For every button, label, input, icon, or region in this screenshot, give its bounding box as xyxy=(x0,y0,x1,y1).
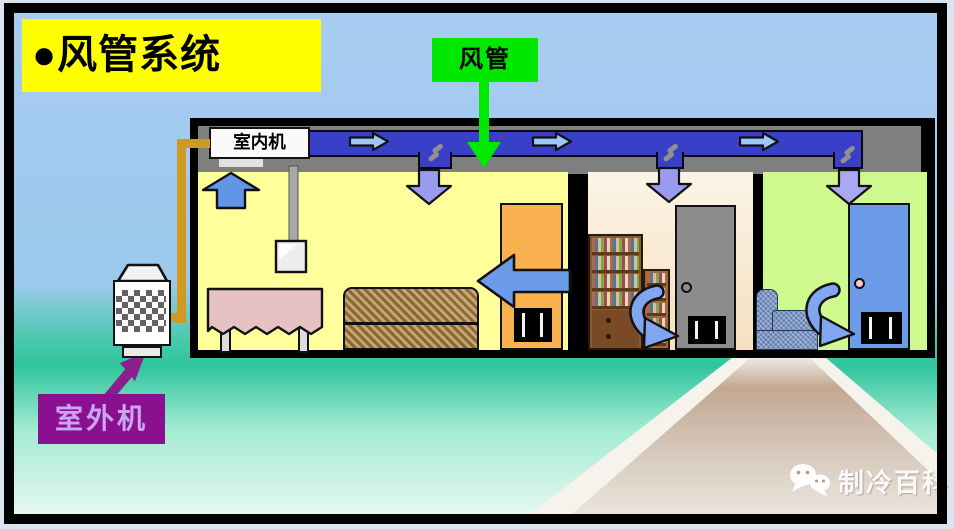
book-row xyxy=(647,303,666,316)
door-gray xyxy=(675,205,736,350)
indoor-unit-label: 室内机 xyxy=(233,132,286,152)
outdoor-unit-label: 室外机 xyxy=(55,403,148,434)
outdoor-unit xyxy=(113,280,171,346)
duct-outlet-tab-3 xyxy=(833,152,863,169)
sofa xyxy=(343,287,479,350)
slide: 室内机 xyxy=(0,0,954,529)
duct-callout-label: 风管 xyxy=(459,46,511,73)
book-row xyxy=(592,256,639,273)
building-cross-section: 室内机 xyxy=(190,118,935,358)
bookshelf-small xyxy=(643,269,670,350)
doorknob-blue-door xyxy=(854,278,865,289)
door-vent-1 xyxy=(514,308,552,342)
book-row xyxy=(647,318,666,331)
indoor-unit-base xyxy=(219,159,263,167)
wechat-icon xyxy=(789,462,833,500)
bookshelf-large xyxy=(588,234,643,350)
slide-title: ●风管系统 xyxy=(32,33,221,77)
vent-slit xyxy=(869,317,872,339)
book-row xyxy=(647,288,666,301)
sofa-seam xyxy=(345,322,477,325)
duct-outlet-tab-2 xyxy=(656,152,684,169)
door-vent-2 xyxy=(688,316,726,344)
slide-title-box: ●风管系统 xyxy=(22,19,321,92)
door-orange xyxy=(500,203,563,350)
refrigerant-pipe-vertical xyxy=(177,139,186,323)
armchair-base xyxy=(756,330,818,350)
door-blue xyxy=(848,203,910,350)
duct-outlet-tab-1 xyxy=(418,152,452,169)
doorknob-gray-door xyxy=(681,282,692,293)
bookshelf-drawers xyxy=(592,310,639,348)
drawer-knob xyxy=(606,318,611,323)
door-divider xyxy=(502,269,561,272)
vent-slit xyxy=(522,313,525,337)
book-row xyxy=(592,274,639,291)
indoor-unit-label-box: 室内机 xyxy=(209,127,310,159)
vent-slit xyxy=(695,321,698,339)
outdoor-unit-label-box: 室外机 xyxy=(38,394,165,444)
book-row xyxy=(647,333,666,346)
drawer-knob xyxy=(606,334,611,339)
air-duct xyxy=(252,130,863,157)
vent-slit xyxy=(540,313,543,337)
door-vent-3 xyxy=(861,312,902,344)
outdoor-unit-base xyxy=(122,346,162,358)
vent-slit xyxy=(889,317,892,339)
watermark: 制冷百科 xyxy=(789,462,950,500)
book-row xyxy=(592,292,639,309)
outdoor-unit-grille xyxy=(116,290,166,332)
vent-slit xyxy=(715,321,718,339)
book-row xyxy=(592,238,639,255)
watermark-text: 制冷百科 xyxy=(838,463,950,500)
duct-callout-box: 风管 xyxy=(432,38,538,82)
book-row xyxy=(647,273,666,286)
